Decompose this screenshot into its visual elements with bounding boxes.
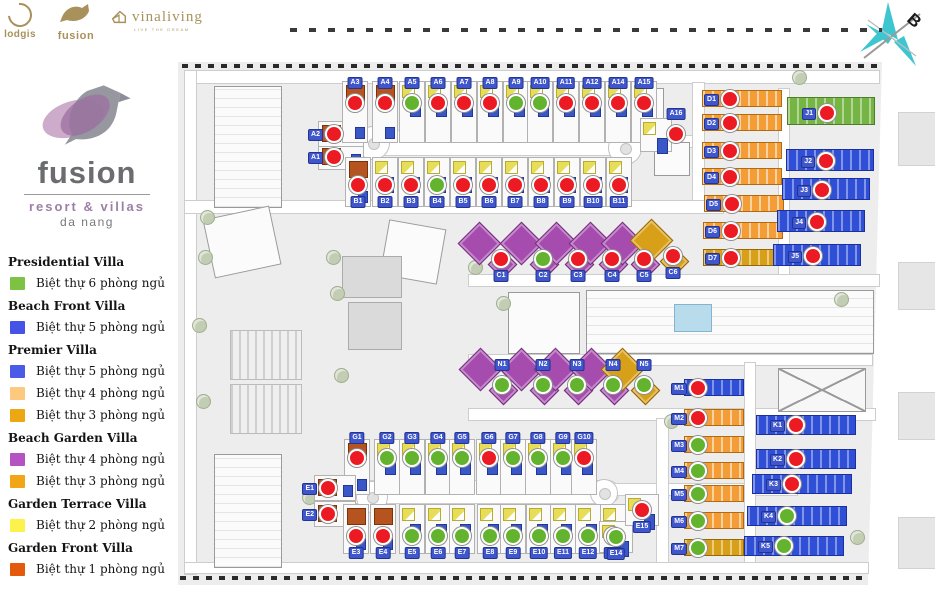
lot-label: G5 [454,432,469,444]
lot-label: D4 [704,172,719,184]
status-marker-sold [804,247,822,265]
lot-label: N3 [570,359,585,371]
brand-divider [24,194,150,195]
lot-label: E15 [633,521,651,533]
lot-label: M2 [671,413,687,425]
boundary-dashes-bottom [180,576,868,580]
status-marker-available [534,376,552,394]
status-marker-available [689,512,707,530]
lot-label: B6 [482,196,497,208]
lot-label: K2 [770,454,785,466]
villa-roof [605,81,631,143]
status-marker-available [689,462,707,480]
status-marker-sold [610,176,628,194]
apartment-building [214,86,282,208]
legend-item: Biệt thự 1 phòng ngủ [10,562,174,576]
villa-roof [503,81,529,143]
tree-icon [198,250,213,265]
status-marker-sold [787,416,805,434]
lot-label: E6 [431,547,446,559]
lot-label: A12 [583,77,602,89]
legend-group: Beach Front VillaBiệt thự 5 phòng ngủ [8,299,174,334]
status-marker-sold [325,125,343,143]
lot-label: E12 [579,547,597,559]
lot-label: B11 [610,196,628,208]
lot-label: C6 [666,267,681,279]
legend-item-label: Biệt thự 4 phòng ngủ [36,452,165,466]
lot-label: G1 [349,432,364,444]
status-marker-sold [374,527,392,545]
legend-group: Premier VillaBiệt thự 5 phòng ngủBiệt th… [8,343,174,422]
legend-item-label: Biệt thự 3 phòng ngủ [36,408,165,422]
status-marker-sold [721,168,739,186]
status-marker-sold [347,527,365,545]
lot-label: J3 [797,185,811,197]
status-marker-available [378,449,396,467]
legend-item: Biệt thự 3 phòng ngủ [10,474,174,488]
lot-label: D6 [705,226,720,238]
lot-label: K3 [766,479,781,491]
legend-item-label: Biệt thự 5 phòng ngủ [36,320,165,334]
fusion-bird-logo-icon [31,78,143,154]
lot-label: E11 [554,547,572,559]
villa-roof [527,81,553,143]
tree-icon [792,70,807,85]
villa-roof [553,81,579,143]
tree-icon [200,210,215,225]
status-marker-available [529,449,547,467]
villa-roof [571,439,597,495]
lot-label: B8 [534,196,549,208]
lot-label: N4 [606,359,621,371]
status-marker-available [504,449,522,467]
lot-label: J4 [792,217,806,229]
lot-label: M5 [671,489,687,501]
villa-roof [372,81,398,143]
legend-group: Garden Front VillaBiệt thự 1 phòng ngủ [8,541,174,576]
status-marker-sold [319,479,337,497]
status-marker-available [607,528,625,546]
site-plan-page: lodgis fusion vinaliving LIVE THE DREAM [0,0,935,601]
villa-roof [476,439,502,495]
status-marker-sold [722,222,740,240]
lot-label: G10 [574,432,593,444]
lot-label: A5 [405,77,420,89]
lot-label: K4 [761,511,776,523]
status-marker-available [530,527,548,545]
status-marker-sold [480,176,498,194]
status-marker-available [429,449,447,467]
lot-label: E5 [405,547,420,559]
legend-item-label: Biệt thự 1 phòng ngủ [36,562,165,576]
status-marker-sold [480,449,498,467]
status-marker-sold [319,505,337,523]
status-marker-sold [402,176,420,194]
legend-item: Biệt thự 2 phòng ngủ [10,518,174,532]
villa-roof [399,81,425,143]
status-marker-available [428,176,446,194]
lot-label: M1 [671,383,687,395]
lot-label: E1 [302,483,317,495]
lot-label: B2 [378,196,393,208]
status-marker-sold [721,114,739,132]
status-marker-available [429,527,447,545]
lot-label: E8 [483,547,498,559]
legend-item-label: Biệt thự 6 phòng ngủ [36,276,165,290]
legend-group-title: Premier Villa [8,343,174,357]
status-marker-available [568,376,586,394]
status-marker-sold [603,250,621,268]
villa-roof [342,81,368,143]
villa-roof [449,439,475,495]
boundary-dashes-outer [290,28,882,32]
lot-label: N5 [637,359,652,371]
status-marker-sold [481,94,499,112]
tree-icon [326,250,341,265]
villa-roof [374,439,400,495]
status-marker-available [534,250,552,268]
lot-label: A4 [378,77,393,89]
offsite-block [898,392,935,440]
lodgis-logo: lodgis [4,3,36,40]
status-marker-sold [349,176,367,194]
lot-label: B4 [430,196,445,208]
legend-item: Biệt thự 5 phòng ngủ [10,320,174,334]
status-marker-sold [635,250,653,268]
lot-label: G8 [530,432,545,444]
lot-label: A14 [609,77,628,89]
lodgis-label: lodgis [4,29,36,40]
lot-label: C1 [494,270,509,282]
status-marker-sold [575,449,593,467]
offsite-block [898,517,935,569]
legend-color-swatch [10,563,25,576]
tree-icon [850,530,865,545]
status-marker-sold [609,94,627,112]
legend-item: Biệt thự 4 phòng ngủ [10,452,174,466]
lot-label: E9 [506,547,521,559]
lot-label: A1 [308,152,323,164]
building [342,256,402,298]
legend-color-swatch [10,453,25,466]
lot-label: B10 [584,196,603,208]
legend-color-swatch [10,519,25,532]
lot-label: M7 [671,543,687,555]
lot-label: A15 [635,77,654,89]
lot-label: A10 [531,77,550,89]
status-marker-sold [584,176,602,194]
lot-label: E3 [349,547,364,559]
lot-label: B9 [560,196,575,208]
status-marker-available [493,376,511,394]
legend-color-swatch [10,365,25,378]
status-marker-sold [783,475,801,493]
status-marker-sold [817,152,835,170]
lot-label: J2 [801,156,815,168]
status-marker-sold [532,176,550,194]
tree-icon [330,286,345,301]
status-marker-available [453,449,471,467]
lot-label: A9 [509,77,524,89]
lot-label: G7 [505,432,520,444]
lot-label: J1 [802,108,816,120]
legend-color-swatch [10,387,25,400]
clubhouse-annex [508,292,580,354]
villa-roof [425,439,451,495]
fusion-logo-small: fusion [55,2,97,42]
status-marker-sold [557,94,575,112]
fusion-bird-icon [59,2,93,24]
legend-group-title: Garden Terrace Villa [8,497,174,511]
legend-item-label: Biệt thự 4 phòng ngủ [36,386,165,400]
villa-roof [579,81,605,143]
status-marker-available [403,449,421,467]
lot-label: G9 [555,432,570,444]
tree-icon [334,368,349,383]
parking-lot [230,330,302,380]
status-marker-sold [635,94,653,112]
offsite-block [898,262,935,310]
legend-color-swatch [10,321,25,334]
status-marker-sold [808,213,826,231]
lot-label: B5 [456,196,471,208]
tree-icon [192,318,207,333]
lot-label: G4 [430,432,445,444]
lot-label: G3 [404,432,419,444]
lot-label: D1 [704,94,719,106]
status-marker-available [531,94,549,112]
lot-label: C4 [605,270,620,282]
villa-roof [525,439,551,495]
villa-roof [500,439,526,495]
lot-label: M4 [671,466,687,478]
lot-label: B3 [404,196,419,208]
legend-item-label: Biệt thự 2 phòng ngủ [36,518,165,532]
lot-label: A8 [483,77,498,89]
status-marker-sold [722,249,740,267]
status-marker-sold [569,250,587,268]
tree-icon [834,292,849,307]
status-marker-sold [787,450,805,468]
lot-label: D5 [706,199,721,211]
legend-item: Biệt thự 6 phòng ngủ [10,276,174,290]
lot-label: C3 [571,270,586,282]
legend-color-swatch [10,475,25,488]
lot-label: G2 [379,432,394,444]
lot-label: D3 [704,146,719,158]
status-marker-sold [721,142,739,160]
status-marker-available [689,436,707,454]
lot-label: K1 [770,420,785,432]
building [348,302,402,350]
villa-roof [425,81,451,143]
legend-group-title: Beach Front Villa [8,299,174,313]
status-marker-available [775,537,793,555]
status-marker-sold [558,176,576,194]
status-marker-available [554,449,572,467]
lot-label: B1 [351,196,366,208]
lot-label: A3 [348,77,363,89]
legend: Presidential VillaBiệt thự 6 phòng ngủBe… [8,255,174,576]
apartment-building [214,454,282,568]
lot-label: B7 [508,196,523,208]
vinaliving-label: vinaliving [132,9,203,26]
brand-subtitle: resort & villas [12,199,162,214]
swimming-pool [674,304,712,332]
partner-logo-bar: lodgis fusion vinaliving LIVE THE DREAM [0,0,935,46]
lot-label: E4 [376,547,391,559]
lot-label: N2 [536,359,551,371]
lot-label: A2 [308,129,323,141]
villa-roof [399,439,425,495]
lot-label: J5 [788,251,802,263]
brand-location: da nang [12,215,162,229]
lot-label: E2 [302,509,317,521]
status-marker-sold [376,94,394,112]
lot-label: E14 [607,548,625,560]
status-marker-sold [492,250,510,268]
tree-icon [196,394,211,409]
status-marker-available [554,527,572,545]
road [184,562,869,574]
status-marker-sold [429,94,447,112]
vinaliving-logo: vinaliving LIVE THE DREAM [110,8,230,32]
villa-roof [451,81,477,143]
lot-label: E7 [455,547,470,559]
status-marker-available [403,527,421,545]
legend-group: Garden Terrace VillaBiệt thự 2 phòng ngủ [8,497,174,532]
status-marker-sold [633,501,651,519]
status-marker-available [689,485,707,503]
legend-group: Presidential VillaBiệt thự 6 phòng ngủ [8,255,174,290]
tree-icon [496,296,511,311]
lot-label: G6 [481,432,496,444]
status-marker-sold [454,176,472,194]
villa-roof [477,81,503,143]
status-marker-available [504,527,522,545]
status-marker-sold [346,94,364,112]
lot-label: A7 [457,77,472,89]
status-marker-available [579,527,597,545]
legend-color-swatch [10,409,25,422]
status-marker-sold [583,94,601,112]
fusion-label: fusion [55,30,97,42]
sidebar: fusion resort & villas da nang President… [0,78,174,585]
status-marker-sold [721,90,739,108]
lot-label: A6 [431,77,446,89]
status-marker-available [689,539,707,557]
lot-label: K5 [758,541,773,553]
boundary-dashes-top [182,64,880,68]
status-marker-sold [348,449,366,467]
lot-label: D7 [705,253,720,265]
status-marker-sold [376,176,394,194]
resort-brand-logo: fusion resort & villas da nang [12,78,162,229]
status-marker-available [481,527,499,545]
vinaliving-house-icon [110,8,128,26]
status-marker-available [507,94,525,112]
status-marker-available [403,94,421,112]
pavilion-building [778,368,866,412]
legend-item-label: Biệt thự 5 phòng ngủ [36,364,165,378]
legend-group-title: Beach Garden Villa [8,431,174,445]
status-marker-sold [455,94,473,112]
legend-item: Biệt thự 4 phòng ngủ [10,386,174,400]
status-marker-sold [818,104,836,122]
status-marker-available [778,507,796,525]
status-marker-sold [325,148,343,166]
parking-lot [230,384,302,434]
legend-item: Biệt thự 5 phòng ngủ [10,364,174,378]
status-marker-available [635,376,653,394]
status-marker-available [453,527,471,545]
legend-item: Biệt thự 3 phòng ngủ [10,408,174,422]
lot-label: A11 [557,77,575,89]
road [656,418,669,568]
brand-name: fusion [12,155,162,191]
lot-label: A16 [667,108,686,120]
vinaliving-tagline: LIVE THE DREAM [134,27,230,32]
compass-north-letter: B [903,9,925,31]
status-marker-sold [689,379,707,397]
offsite-block [898,112,935,166]
legend-group-title: Presidential Villa [8,255,174,269]
status-marker-sold [813,181,831,199]
legend-group: Beach Garden VillaBiệt thự 4 phòng ngủBi… [8,431,174,488]
masterplan-map: A1A2A3A4A5A6A7A8A9A10A11A12A14A15A16B1B2… [178,62,935,585]
legend-color-swatch [10,277,25,290]
lot-label: M6 [671,516,687,528]
legend-item-label: Biệt thự 3 phòng ngủ [36,474,165,488]
lodgis-ring-icon [3,0,37,32]
main-resort-building [586,290,874,354]
lot-label: C2 [536,270,551,282]
lot-label: M3 [671,440,687,452]
legend-group-title: Garden Front Villa [8,541,174,555]
lot-label: D2 [704,118,719,130]
status-marker-sold [506,176,524,194]
status-marker-sold [664,247,682,265]
lot-label: E10 [530,547,548,559]
status-marker-sold [667,125,685,143]
status-marker-available [604,376,622,394]
status-marker-sold [723,195,741,213]
lot-label: N1 [495,359,510,371]
lot-label: C5 [637,270,652,282]
status-marker-sold [689,409,707,427]
